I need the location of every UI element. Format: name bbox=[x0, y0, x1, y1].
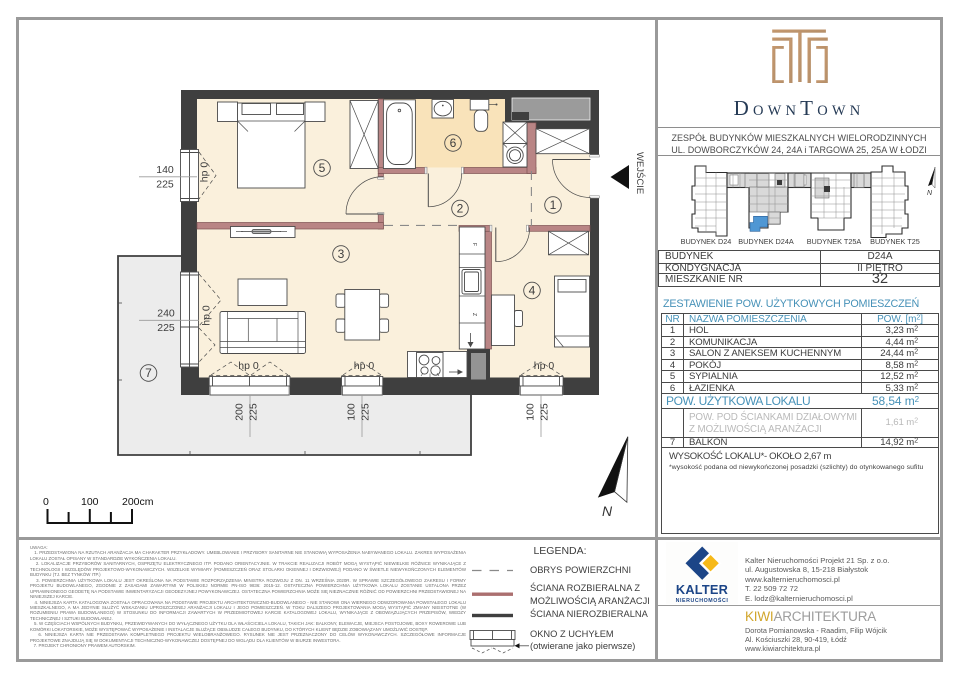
svg-text:200: 200 bbox=[234, 403, 246, 421]
svg-text:hp 0: hp 0 bbox=[238, 360, 259, 372]
svg-text:6: 6 bbox=[450, 136, 457, 150]
svg-text:7: 7 bbox=[145, 366, 152, 380]
svg-text:225: 225 bbox=[539, 403, 551, 421]
svg-text:200cm: 200cm bbox=[122, 496, 154, 508]
svg-text:BUDYNEK D24: BUDYNEK D24 bbox=[681, 237, 732, 246]
svg-text:BUDYNEK T25A: BUDYNEK T25A bbox=[807, 237, 862, 246]
svg-text:N: N bbox=[602, 503, 613, 519]
svg-text:100: 100 bbox=[81, 496, 99, 508]
svg-text:100: 100 bbox=[346, 403, 358, 421]
svg-text:WEJŚCIE: WEJŚCIE bbox=[634, 152, 646, 194]
svg-text:5: 5 bbox=[319, 161, 326, 175]
svg-text:240: 240 bbox=[157, 308, 175, 320]
svg-text:hp 0: hp 0 bbox=[534, 360, 555, 372]
svg-text:KALTER: KALTER bbox=[676, 582, 728, 597]
svg-text:1: 1 bbox=[550, 198, 557, 212]
svg-text:2: 2 bbox=[457, 202, 464, 216]
svg-text:3: 3 bbox=[338, 247, 345, 261]
svg-text:225: 225 bbox=[157, 322, 175, 334]
svg-text:0: 0 bbox=[43, 496, 49, 508]
svg-text:hp 0: hp 0 bbox=[199, 162, 211, 183]
svg-text:225: 225 bbox=[156, 179, 174, 191]
svg-text:hp 0: hp 0 bbox=[354, 360, 375, 372]
svg-text:BUDYNEK T25: BUDYNEK T25 bbox=[870, 237, 920, 246]
svg-text:NIERUCHOMOŚCI: NIERUCHOMOŚCI bbox=[676, 597, 729, 604]
svg-text:hp 0: hp 0 bbox=[201, 305, 213, 326]
svg-text:4: 4 bbox=[529, 284, 536, 298]
svg-text:225: 225 bbox=[360, 403, 372, 421]
svg-text:100: 100 bbox=[525, 403, 537, 421]
svg-text:140: 140 bbox=[156, 164, 174, 176]
svg-text:225: 225 bbox=[248, 403, 260, 421]
svg-text:BUDYNEK D24A: BUDYNEK D24A bbox=[738, 237, 794, 246]
svg-text:N: N bbox=[927, 190, 933, 197]
